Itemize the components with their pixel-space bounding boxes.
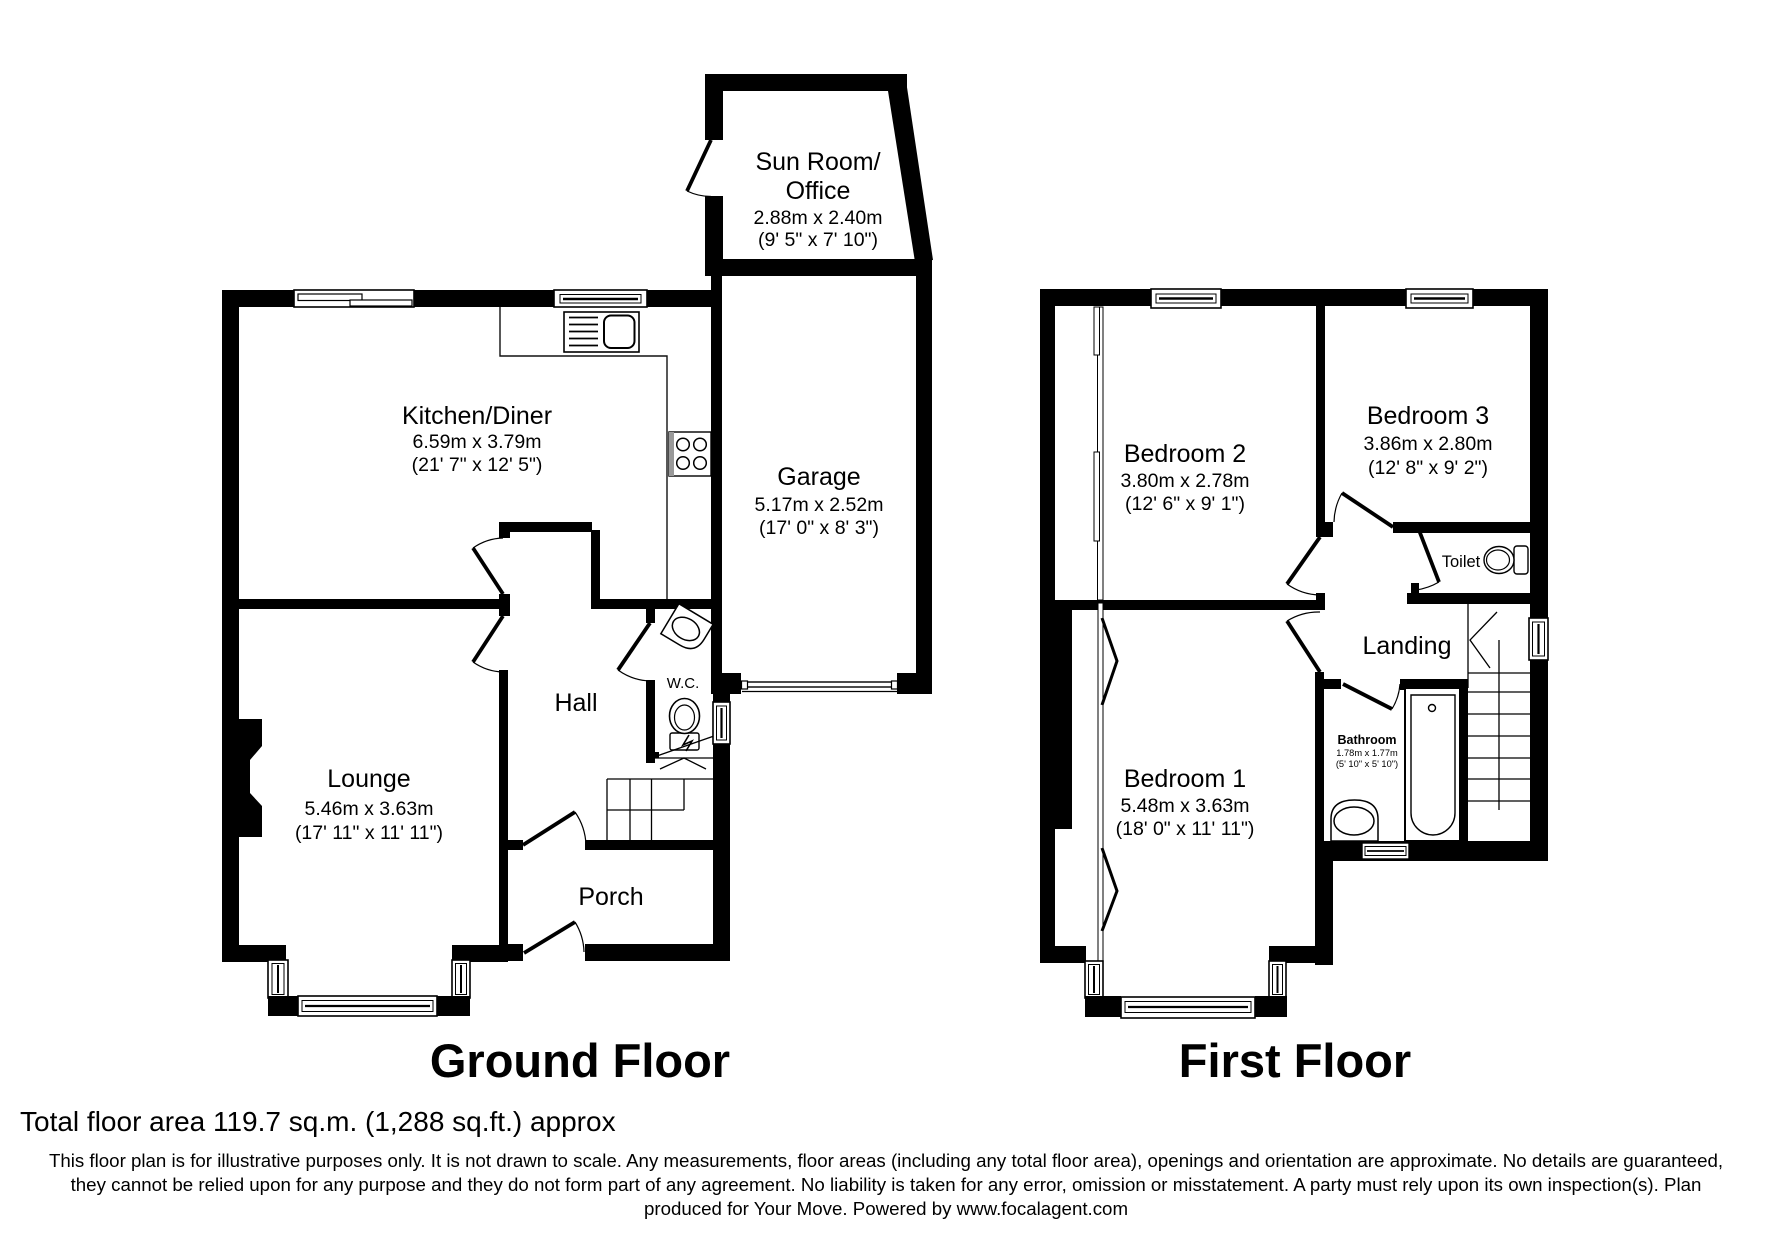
svg-text:W.C.: W.C.: [667, 675, 700, 692]
svg-text:(9' 5" x 7' 10"): (9' 5" x 7' 10"): [758, 229, 878, 251]
svg-text:Bedroom 3: Bedroom 3: [1367, 402, 1489, 430]
svg-text:Office: Office: [786, 177, 851, 205]
svg-text:(12' 6" x 9' 1"): (12' 6" x 9' 1"): [1125, 493, 1245, 515]
svg-text:2.88m x 2.40m: 2.88m x 2.40m: [754, 207, 883, 229]
svg-text:Bedroom 2: Bedroom 2: [1124, 440, 1246, 468]
svg-text:(5' 10" x 5' 10"): (5' 10" x 5' 10"): [1336, 759, 1398, 769]
svg-text:5.48m x 3.63m: 5.48m x 3.63m: [1121, 795, 1250, 817]
svg-text:5.17m x 2.52m: 5.17m x 2.52m: [755, 494, 884, 516]
svg-text:5.46m x 3.63m: 5.46m x 3.63m: [305, 798, 434, 820]
svg-text:This floor plan is for illustr: This floor plan is for illustrative purp…: [49, 1150, 1723, 1171]
svg-text:Bathroom: Bathroom: [1337, 733, 1396, 747]
svg-text:3.80m x 2.78m: 3.80m x 2.78m: [1121, 470, 1250, 492]
svg-text:6.59m x 3.79m: 6.59m x 3.79m: [413, 431, 542, 453]
svg-text:Toilet: Toilet: [1442, 553, 1481, 571]
svg-text:Lounge: Lounge: [327, 765, 410, 793]
svg-text:(17' 0" x 8' 3"): (17' 0" x 8' 3"): [759, 517, 879, 539]
svg-text:Ground Floor: Ground Floor: [430, 1034, 730, 1087]
svg-text:Bedroom 1: Bedroom 1: [1124, 765, 1246, 793]
svg-text:1.78m x 1.77m: 1.78m x 1.77m: [1336, 748, 1398, 758]
svg-text:(12' 8" x 9' 2"): (12' 8" x 9' 2"): [1368, 457, 1488, 479]
svg-text:Porch: Porch: [578, 883, 643, 911]
svg-text:Total floor area 119.7 sq.m. (: Total floor area 119.7 sq.m. (1,288 sq.f…: [20, 1106, 616, 1137]
svg-text:First Floor: First Floor: [1179, 1034, 1411, 1087]
svg-text:3.86m x 2.80m: 3.86m x 2.80m: [1364, 433, 1493, 455]
svg-text:Landing: Landing: [1363, 632, 1452, 660]
svg-text:Sun Room/: Sun Room/: [755, 148, 880, 176]
svg-text:Hall: Hall: [554, 689, 597, 717]
svg-text:(21' 7" x 12' 5"): (21' 7" x 12' 5"): [412, 454, 543, 476]
svg-text:produced for Your Move. Powere: produced for Your Move. Powered by www.f…: [644, 1198, 1128, 1219]
svg-text:they cannot be relied upon for: they cannot be relied upon for any purpo…: [71, 1174, 1702, 1195]
svg-text:Garage: Garage: [777, 463, 860, 491]
svg-text:Kitchen/Diner: Kitchen/Diner: [402, 402, 552, 430]
svg-text:(17' 11" x 11' 11"): (17' 11" x 11' 11"): [295, 822, 443, 844]
svg-text:(18' 0" x 11' 11"): (18' 0" x 11' 11"): [1116, 818, 1255, 840]
